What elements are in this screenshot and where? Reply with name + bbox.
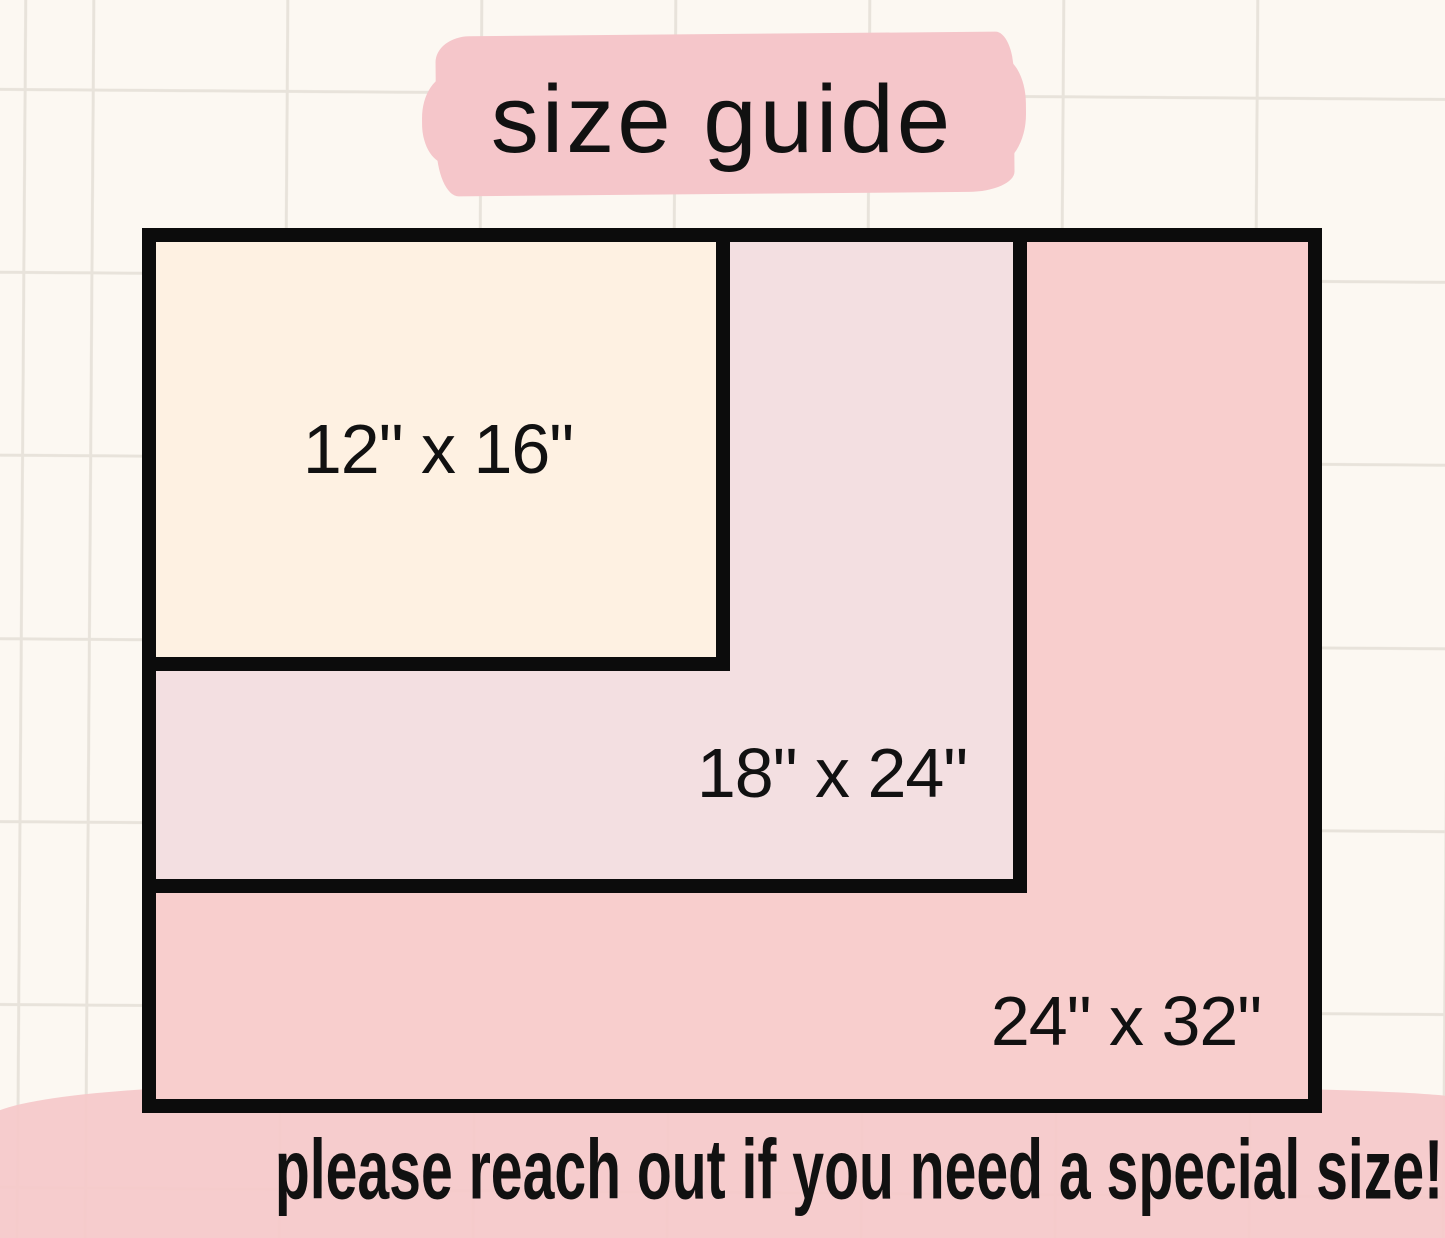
footer-message: please reach out if you need a special s… — [0, 1170, 1445, 1238]
page-title: size guide — [491, 65, 953, 175]
size-label-18x24: 18" x 24" — [697, 733, 967, 813]
size-label-24x32: 24" x 32" — [991, 981, 1261, 1061]
footer-message-text: please reach out if you need a special s… — [275, 1122, 1443, 1219]
size-guide-graphic: size guide 12" x 16" 18" x 24" 24" x 32"… — [0, 0, 1445, 1238]
size-label-12x16: 12" x 16" — [303, 409, 573, 489]
